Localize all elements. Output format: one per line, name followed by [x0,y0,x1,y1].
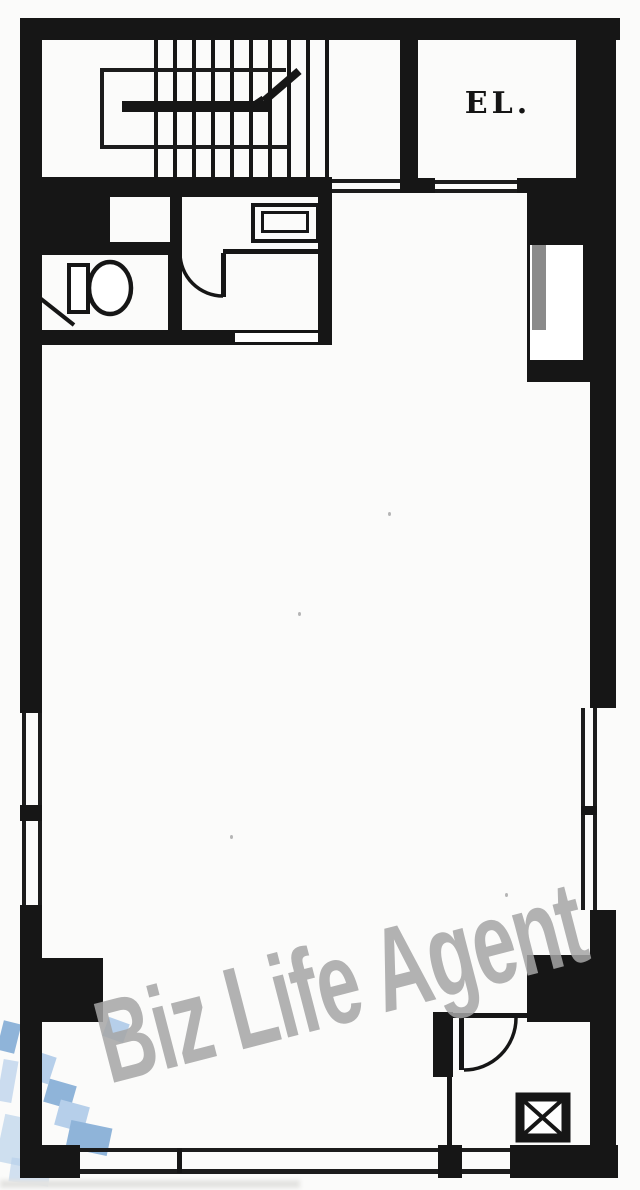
stair-up-arrow-tail [251,98,263,106]
toilet-tank-icon [69,265,88,312]
fixtures-overlay [0,0,640,1190]
floor-plan: EL. [0,0,640,1190]
washroom-door-arc [180,253,223,296]
vestibule-door-arc [464,1018,516,1070]
stair-up-arrow-icon [264,71,299,101]
toilet-bowl-icon [89,262,131,314]
